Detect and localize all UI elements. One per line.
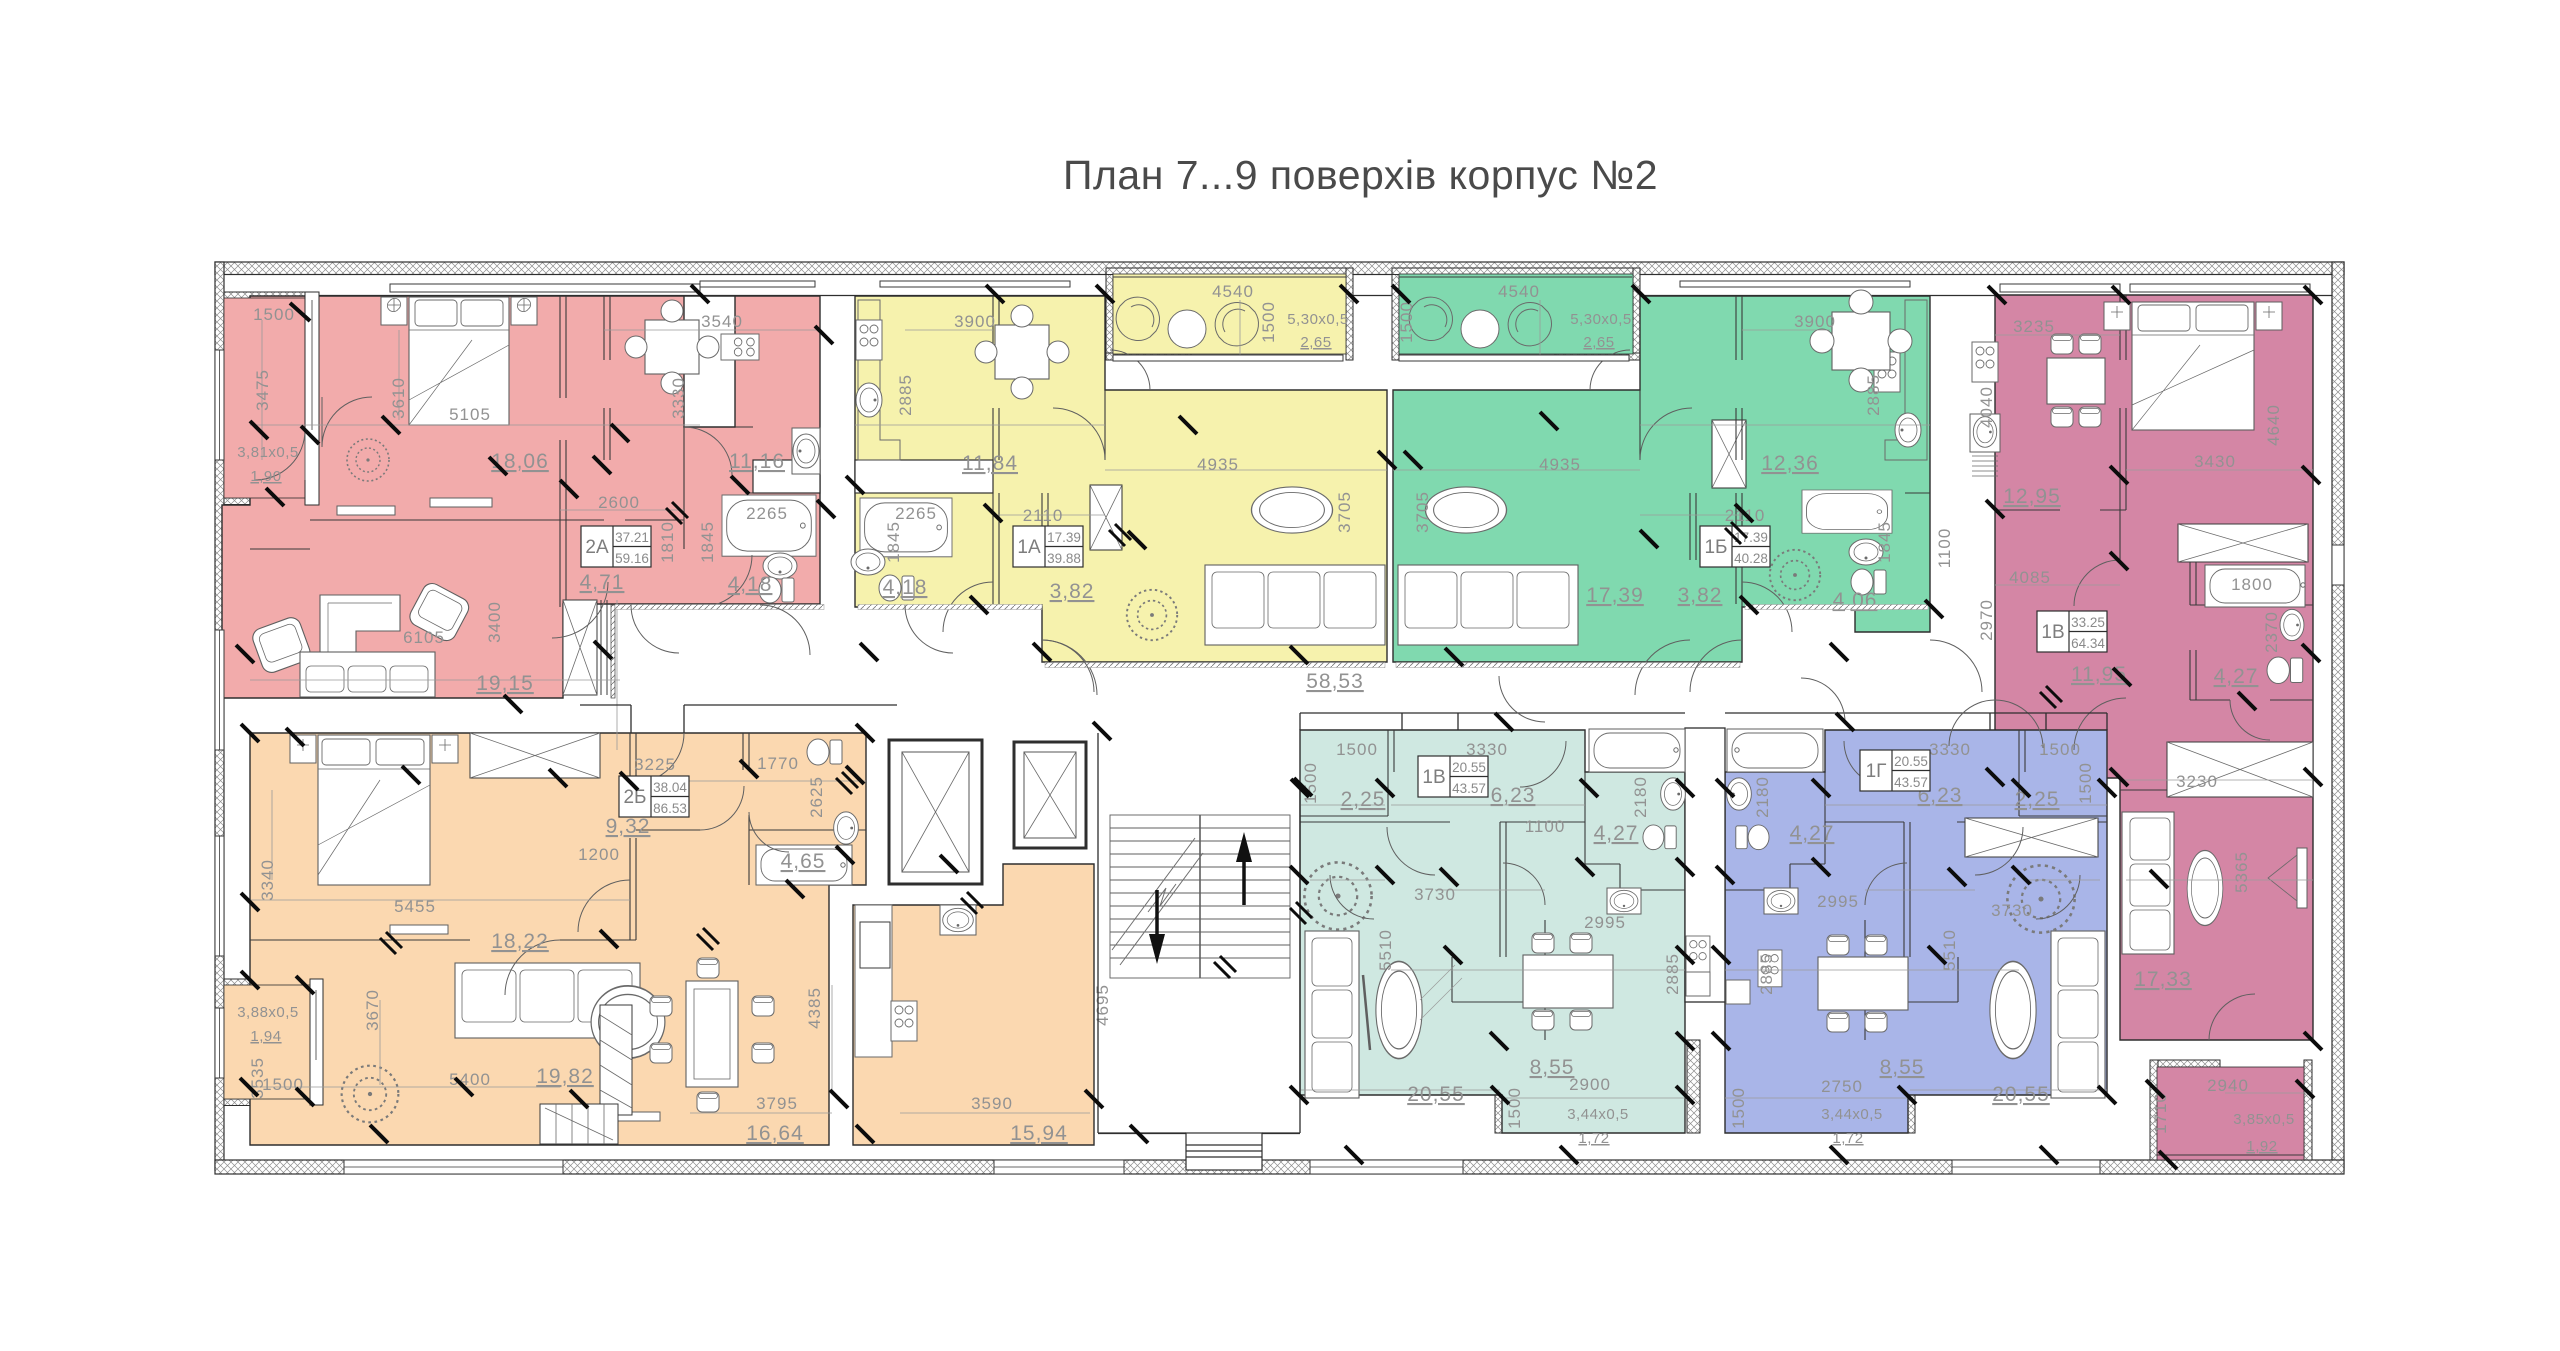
- svg-text:1,94: 1,94: [250, 1028, 281, 1045]
- svg-text:4935: 4935: [1539, 455, 1581, 474]
- svg-text:17.39: 17.39: [1047, 530, 1081, 545]
- svg-text:2940: 2940: [2207, 1076, 2249, 1095]
- svg-text:3400: 3400: [485, 601, 504, 643]
- svg-text:1500: 1500: [1397, 301, 1416, 343]
- svg-text:2995: 2995: [1817, 892, 1859, 911]
- svg-text:18,22: 18,22: [491, 930, 549, 953]
- svg-text:1В: 1В: [2041, 622, 2064, 643]
- svg-text:1500: 1500: [2039, 740, 2081, 759]
- svg-text:4695: 4695: [1093, 984, 1112, 1026]
- svg-text:2600: 2600: [598, 493, 640, 512]
- svg-text:1,92: 1,92: [2246, 1138, 2277, 1155]
- svg-text:1810: 1810: [658, 521, 677, 563]
- svg-text:20,55: 20,55: [1992, 1083, 2050, 1106]
- svg-text:11,84: 11,84: [962, 452, 1018, 475]
- svg-text:39.88: 39.88: [1047, 551, 1081, 566]
- svg-text:4,27: 4,27: [2214, 665, 2259, 688]
- svg-text:3610: 3610: [389, 377, 408, 419]
- svg-text:1500: 1500: [1729, 1087, 1748, 1129]
- svg-text:1500: 1500: [1336, 740, 1378, 759]
- svg-text:2265: 2265: [895, 504, 937, 523]
- svg-text:5365: 5365: [2232, 851, 2251, 893]
- svg-text:2625: 2625: [807, 776, 826, 818]
- svg-text:4385: 4385: [805, 987, 824, 1029]
- svg-text:4540: 4540: [1498, 282, 1540, 301]
- svg-text:4085: 4085: [2009, 568, 2051, 587]
- svg-text:5,30x0,5: 5,30x0,5: [1570, 311, 1632, 328]
- svg-text:17,33: 17,33: [2134, 968, 2192, 991]
- svg-text:20,55: 20,55: [1407, 1083, 1465, 1106]
- svg-text:6105: 6105: [403, 628, 445, 647]
- svg-text:86.53: 86.53: [653, 801, 687, 816]
- svg-text:3900: 3900: [1794, 312, 1836, 331]
- svg-text:1100: 1100: [1935, 528, 1954, 569]
- svg-text:3,82: 3,82: [1050, 580, 1095, 603]
- svg-text:4540: 4540: [1212, 282, 1254, 301]
- svg-text:58,53: 58,53: [1306, 670, 1364, 693]
- svg-text:4,18: 4,18: [728, 573, 773, 596]
- svg-text:1500: 1500: [1301, 762, 1320, 804]
- svg-text:1800: 1800: [2231, 575, 2273, 594]
- svg-text:12,36: 12,36: [1761, 452, 1819, 475]
- svg-text:1710: 1710: [2151, 1092, 2170, 1134]
- svg-text:9,32: 9,32: [606, 815, 651, 838]
- svg-text:2995: 2995: [1584, 913, 1626, 932]
- svg-text:3,81x0,5: 3,81x0,5: [237, 444, 299, 461]
- svg-text:1Б: 1Б: [1704, 537, 1727, 558]
- svg-text:3,88x0,5: 3,88x0,5: [237, 1004, 299, 1021]
- svg-text:1500: 1500: [253, 305, 295, 324]
- svg-text:1,72: 1,72: [1832, 1130, 1863, 1147]
- svg-text:4640: 4640: [2264, 404, 2283, 446]
- svg-text:17,39: 17,39: [1586, 584, 1644, 607]
- svg-text:5510: 5510: [1376, 929, 1395, 971]
- svg-text:4,65: 4,65: [781, 850, 826, 873]
- svg-text:4040: 4040: [1977, 386, 1996, 428]
- svg-text:2900: 2900: [1569, 1075, 1611, 1094]
- svg-text:59.16: 59.16: [615, 551, 649, 566]
- svg-text:37.21: 37.21: [615, 530, 649, 545]
- svg-text:2885: 2885: [1663, 953, 1682, 995]
- svg-text:3475: 3475: [253, 369, 272, 411]
- svg-text:3,85x0,5: 3,85x0,5: [2233, 1111, 2295, 1128]
- svg-text:11,16: 11,16: [729, 450, 785, 473]
- svg-text:2,65: 2,65: [1300, 334, 1331, 351]
- svg-text:3670: 3670: [363, 989, 382, 1031]
- svg-text:2970: 2970: [1977, 599, 1996, 641]
- svg-text:19,82: 19,82: [536, 1065, 594, 1088]
- svg-text:1500: 1500: [1259, 301, 1278, 343]
- svg-text:2А: 2А: [585, 537, 609, 558]
- svg-text:3540: 3540: [701, 312, 743, 331]
- svg-text:1100: 1100: [1525, 817, 1566, 836]
- svg-text:1В: 1В: [1422, 767, 1445, 788]
- svg-text:2750: 2750: [1821, 1077, 1863, 1096]
- svg-text:1200: 1200: [578, 845, 620, 864]
- svg-text:3340: 3340: [258, 859, 277, 901]
- svg-text:3,44x0,5: 3,44x0,5: [1821, 1106, 1883, 1123]
- svg-text:6,23: 6,23: [1491, 784, 1536, 807]
- svg-text:8,55: 8,55: [1530, 1056, 1575, 1079]
- svg-text:1845: 1845: [1875, 521, 1894, 563]
- svg-text:5510: 5510: [1940, 929, 1959, 971]
- svg-text:15,94: 15,94: [1010, 1122, 1068, 1145]
- svg-text:2110: 2110: [1023, 506, 1064, 525]
- svg-text:1,90: 1,90: [250, 468, 281, 485]
- svg-text:43.57: 43.57: [1894, 775, 1928, 790]
- svg-text:4,27: 4,27: [1790, 822, 1835, 845]
- svg-text:3730: 3730: [1991, 901, 2033, 920]
- svg-text:43.57: 43.57: [1452, 781, 1486, 796]
- svg-text:3230: 3230: [2176, 772, 2218, 791]
- svg-text:64.34: 64.34: [2071, 636, 2105, 651]
- svg-text:3705: 3705: [1413, 491, 1432, 533]
- svg-text:1845: 1845: [884, 521, 903, 563]
- svg-text:2885: 2885: [1757, 953, 1776, 995]
- svg-text:3795: 3795: [756, 1094, 798, 1113]
- svg-text:3,44x0,5: 3,44x0,5: [1567, 1106, 1629, 1123]
- svg-text:2Б: 2Б: [623, 787, 646, 808]
- svg-text:3330: 3330: [669, 377, 688, 419]
- svg-text:16,64: 16,64: [746, 1122, 804, 1145]
- svg-text:3900: 3900: [954, 312, 996, 331]
- svg-text:20.55: 20.55: [1894, 754, 1928, 769]
- svg-text:1500: 1500: [1505, 1087, 1524, 1129]
- svg-text:5,30x0,5: 5,30x0,5: [1287, 311, 1349, 328]
- svg-text:38.04: 38.04: [653, 780, 687, 795]
- svg-text:4,18: 4,18: [883, 576, 928, 599]
- svg-text:1500: 1500: [2076, 762, 2095, 804]
- svg-text:5105: 5105: [449, 405, 491, 424]
- svg-text:2370: 2370: [2262, 611, 2281, 653]
- svg-text:20.55: 20.55: [1452, 760, 1486, 775]
- svg-text:33.25: 33.25: [2071, 615, 2105, 630]
- svg-text:3705: 3705: [1335, 491, 1354, 533]
- svg-text:1Г: 1Г: [1866, 761, 1887, 782]
- svg-text:3430: 3430: [2194, 452, 2236, 471]
- svg-text:2,25: 2,25: [1341, 788, 1386, 811]
- svg-text:2,65: 2,65: [1583, 334, 1614, 351]
- svg-text:2180: 2180: [1631, 776, 1650, 818]
- svg-text:2,25: 2,25: [2015, 788, 2060, 811]
- svg-text:3225: 3225: [634, 755, 676, 774]
- svg-text:1845: 1845: [698, 521, 717, 563]
- svg-text:19,15: 19,15: [476, 672, 534, 695]
- svg-text:5455: 5455: [394, 897, 436, 916]
- svg-text:2180: 2180: [1753, 776, 1772, 818]
- svg-text:1770: 1770: [757, 754, 799, 773]
- svg-text:40.28: 40.28: [1734, 551, 1768, 566]
- svg-text:4,27: 4,27: [1594, 822, 1639, 845]
- svg-text:1,72: 1,72: [1578, 1130, 1609, 1147]
- svg-text:2885: 2885: [1864, 374, 1883, 416]
- svg-text:3730: 3730: [1414, 885, 1456, 904]
- svg-text:План 7...9 поверхів корпус: План 7...9 поверхів корпус №2: [1063, 152, 1658, 198]
- svg-text:3,82: 3,82: [1678, 584, 1723, 607]
- svg-text:3235: 3235: [2013, 317, 2055, 336]
- svg-text:12,95: 12,95: [2003, 485, 2061, 508]
- svg-text:3590: 3590: [971, 1094, 1013, 1113]
- svg-text:4935: 4935: [1197, 455, 1239, 474]
- svg-text:2885: 2885: [896, 374, 915, 416]
- svg-text:4,71: 4,71: [580, 571, 625, 594]
- svg-text:8,55: 8,55: [1880, 1056, 1925, 1079]
- svg-text:2265: 2265: [746, 504, 788, 523]
- svg-text:3330: 3330: [1929, 740, 1971, 759]
- svg-text:1А: 1А: [1017, 537, 1041, 558]
